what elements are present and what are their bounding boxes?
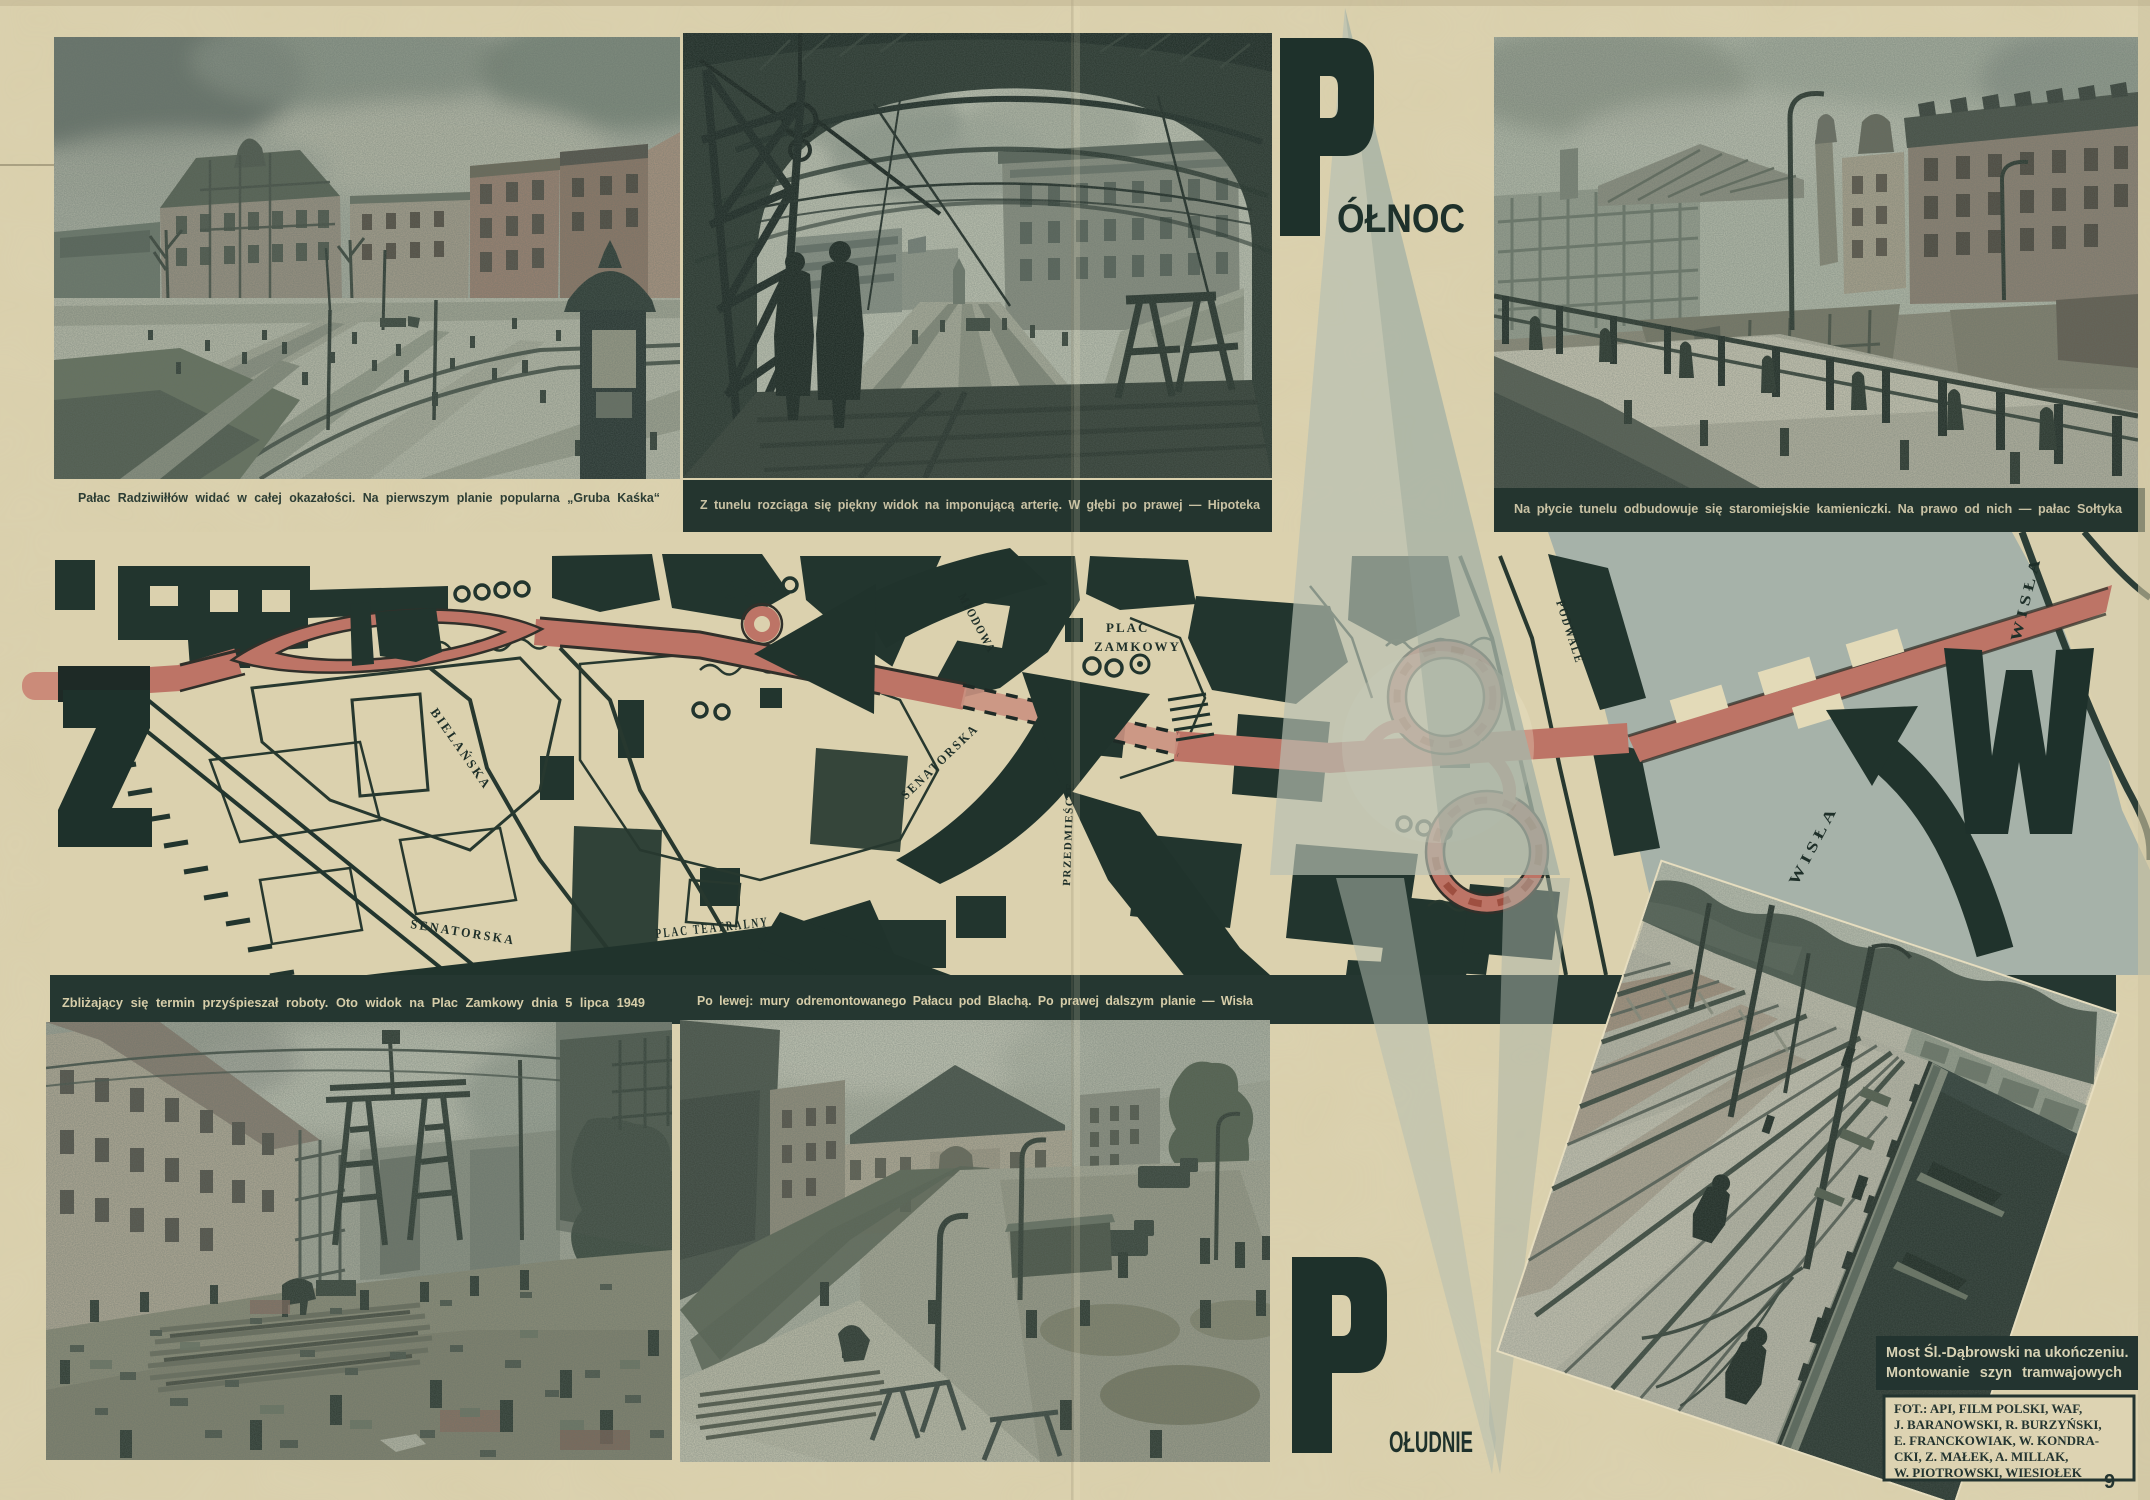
svg-text:J. BARANOWSKI, R. BURZYŃSKI,: J. BARANOWSKI, R. BURZYŃSKI,	[1894, 1417, 2102, 1432]
svg-text:ZAMKOWY: ZAMKOWY	[1094, 639, 1181, 654]
svg-text:Po lewej: mury odremontowanego: Po lewej: mury odremontowanego Pałacu po…	[697, 994, 1254, 1008]
svg-text:E. FRANCKOWIAK, W. KONDRA-: E. FRANCKOWIAK, W. KONDRA-	[1894, 1433, 2099, 1448]
svg-text:W. PIOTROWSKI, WIESIOŁEK: W. PIOTROWSKI, WIESIOŁEK	[1894, 1465, 2083, 1480]
svg-text:FOT.: API, FILM POLSKI, WAF,: FOT.: API, FILM POLSKI, WAF,	[1894, 1401, 2082, 1416]
svg-text:ÓŁNOC: ÓŁNOC	[1337, 195, 1465, 241]
svg-text:Pałac Radziwiłłów widać w całe: Pałac Radziwiłłów widać w całej okazałoś…	[78, 491, 660, 505]
svg-text:Na płycie tunelu odbudowuje si: Na płycie tunelu odbudowuje się staromie…	[1514, 502, 2123, 516]
svg-text:Most Śl.-Dąbrowski na ukończen: Most Śl.-Dąbrowski na ukończeniu.	[1886, 1343, 2129, 1361]
svg-text:PLAC: PLAC	[1106, 620, 1149, 635]
svg-text:9: 9	[2104, 1471, 2115, 1493]
svg-text:Montowanie szyn tramwajowych: Montowanie szyn tramwajowych	[1886, 1365, 2122, 1381]
svg-text:Z tunelu rozciąga się piękny w: Z tunelu rozciąga się piękny widok na im…	[700, 498, 1261, 512]
svg-text:Zbliżający się termin przyśpie: Zbliżający się termin przyśpieszał robot…	[62, 996, 645, 1010]
svg-text:CKI, Z. MAŁEK, A. MILLAK,: CKI, Z. MAŁEK, A. MILLAK,	[1894, 1449, 2068, 1464]
svg-text:OŁUDNIE: OŁUDNIE	[1389, 1426, 1473, 1459]
